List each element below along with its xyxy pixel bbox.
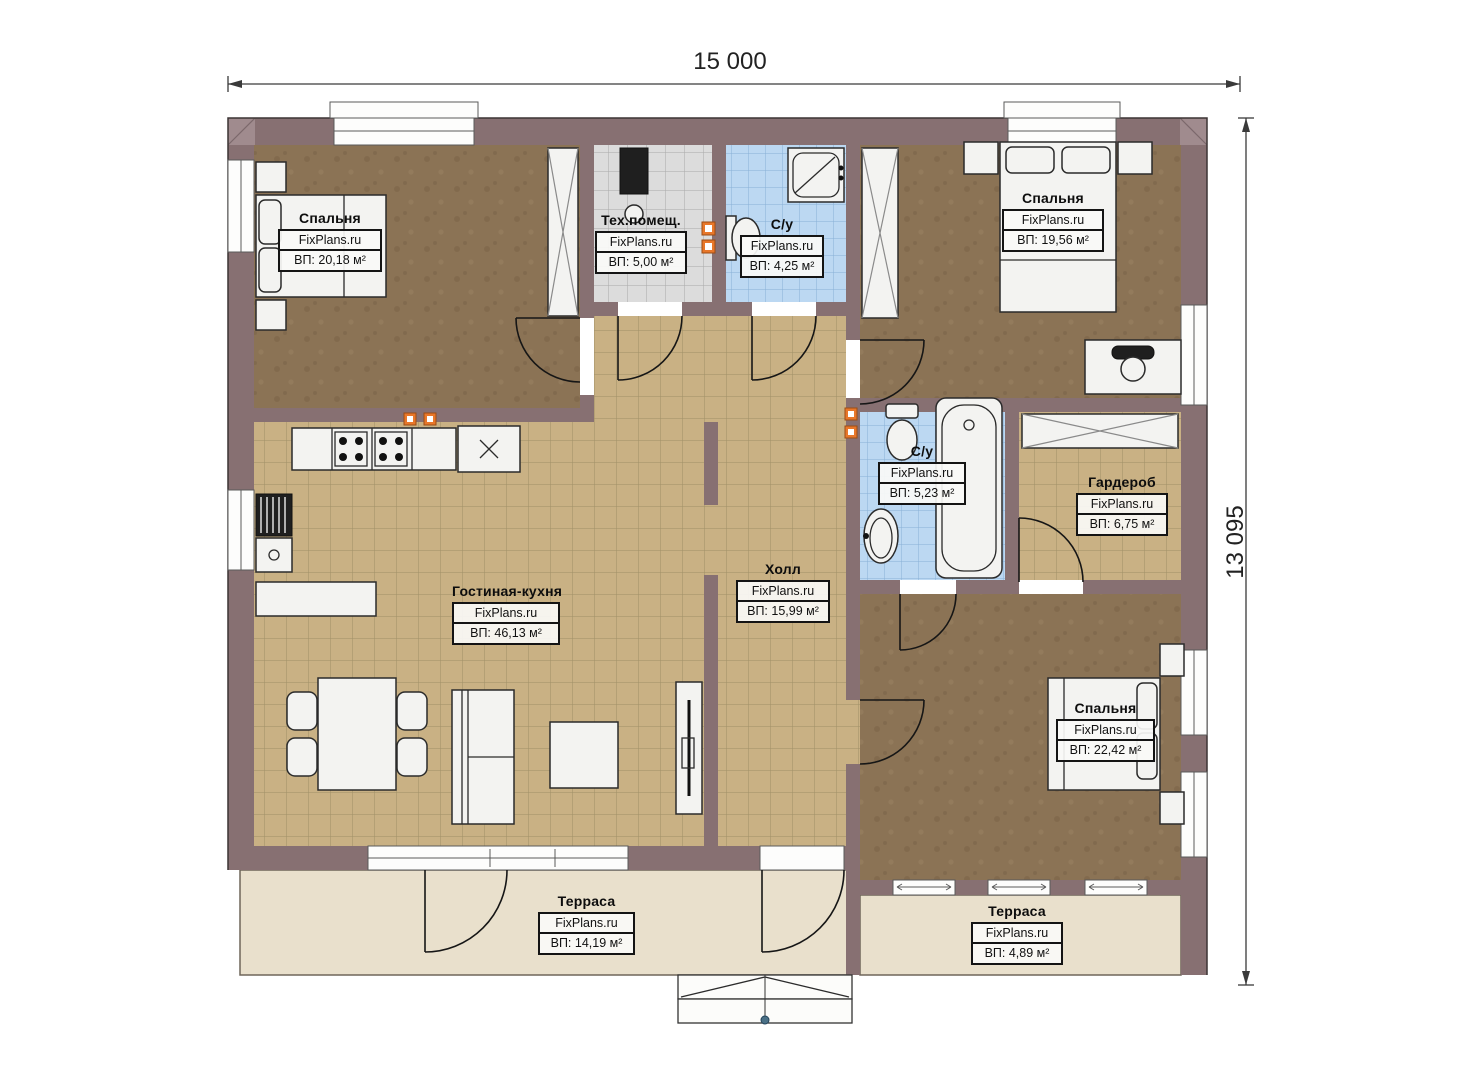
nightstand [964, 142, 998, 174]
room-label-living-kitchen: Гостиная-кухня FixPlans.ru ВП: 46,13 м² [452, 583, 560, 645]
room-brand-watermark: FixPlans.ru [1056, 719, 1155, 741]
room-brand-watermark: FixPlans.ru [595, 231, 687, 253]
room-name: С/у [878, 443, 966, 459]
chair [287, 738, 317, 776]
dimension-width-label: 15 000 [570, 48, 890, 76]
room-area: ВП: 4,89 м² [971, 942, 1063, 964]
room-name: Гардероб [1076, 474, 1168, 490]
furniture-wardrobe [1022, 414, 1178, 448]
hall-floor [718, 422, 860, 846]
room-name: Тех.помещ. [595, 212, 687, 228]
room-label-bathroom-1: С/у FixPlans.ru ВП: 4,25 м² [740, 216, 824, 278]
room-name: Спальня [278, 210, 382, 226]
room-area: ВП: 20,18 м² [278, 249, 382, 271]
room-area: ВП: 6,75 м² [1076, 513, 1168, 535]
nightstand [1118, 142, 1152, 174]
sink [864, 509, 898, 563]
boiler [620, 148, 648, 194]
room-label-tech-room: Тех.помещ. FixPlans.ru ВП: 5,00 м² [595, 212, 687, 274]
room-area: ВП: 5,00 м² [595, 251, 687, 273]
room-name: Спальня [1002, 190, 1104, 206]
kitchen-island [256, 582, 376, 616]
chair-seat [1121, 357, 1145, 381]
window-sill-bedroom-1 [330, 102, 478, 118]
chair [397, 692, 427, 730]
room-label-bathroom-2: С/у FixPlans.ru ВП: 5,23 м² [878, 443, 966, 505]
room-area: ВП: 15,99 м² [736, 600, 830, 622]
room-name: С/у [740, 216, 824, 232]
kitchen-counter [292, 428, 456, 470]
room-label-bedroom-2: Спальня FixPlans.ru ВП: 19,56 м² [1002, 190, 1104, 252]
room-name: Спальня [1056, 700, 1155, 716]
room-name: Гостиная-кухня [452, 583, 560, 599]
room-area: ВП: 5,23 м² [878, 482, 966, 504]
coffee-table [550, 722, 618, 788]
room-area: ВП: 46,13 м² [452, 622, 560, 644]
room-label-bedroom-3: Спальня FixPlans.ru ВП: 22,42 м² [1056, 700, 1155, 762]
room-brand-watermark: FixPlans.ru [971, 922, 1063, 944]
room-area: ВП: 22,42 м² [1056, 739, 1155, 761]
room-label-terrace-2: Терраса FixPlans.ru ВП: 4,89 м² [971, 903, 1063, 965]
toilet-tank [886, 404, 918, 418]
room-label-hall: Холл FixPlans.ru ВП: 15,99 м² [736, 561, 830, 623]
nightstand [256, 162, 286, 192]
room-brand-watermark: FixPlans.ru [740, 235, 824, 257]
room-name: Терраса [538, 893, 635, 909]
room-area: ВП: 14,19 м² [538, 932, 635, 954]
room-brand-watermark: FixPlans.ru [1076, 493, 1168, 515]
pillow [1006, 147, 1054, 173]
chair [287, 692, 317, 730]
room-brand-watermark: FixPlans.ru [278, 229, 382, 251]
room-brand-watermark: FixPlans.ru [736, 580, 830, 602]
room-label-terrace-1: Терраса FixPlans.ru ВП: 14,19 м² [538, 893, 635, 955]
hall-upper-floor [594, 316, 846, 422]
door-opening-hall-terrace [760, 846, 844, 870]
room-label-bedroom-1: Спальня FixPlans.ru ВП: 20,18 м² [278, 210, 382, 272]
floor-plan-canvas: 15 000 13 095 Спальня FixPlans.ru ВП: 20… [0, 0, 1473, 1080]
chair [397, 738, 427, 776]
room-brand-watermark: FixPlans.ru [452, 602, 560, 624]
window-sill-bedroom-2 [1004, 102, 1120, 118]
room-brand-watermark: FixPlans.ru [878, 462, 966, 484]
dining-table [318, 678, 396, 790]
nightstand [1160, 644, 1184, 676]
room-name: Холл [736, 561, 830, 577]
room-name: Терраса [971, 903, 1063, 919]
entrance-steps [678, 975, 852, 1024]
pillow [1062, 147, 1110, 173]
room-label-wardrobe: Гардероб FixPlans.ru ВП: 6,75 м² [1076, 474, 1168, 536]
floor-plan-drawing [0, 0, 1473, 1080]
nightstand [1160, 792, 1184, 824]
room-brand-watermark: FixPlans.ru [538, 912, 635, 934]
room-area: ВП: 4,25 м² [740, 255, 824, 277]
nightstand [256, 300, 286, 330]
room-area: ВП: 19,56 м² [1002, 229, 1104, 251]
dimension-height-label: 13 095 [1222, 462, 1250, 622]
room-brand-watermark: FixPlans.ru [1002, 209, 1104, 231]
dishwasher [256, 538, 292, 572]
